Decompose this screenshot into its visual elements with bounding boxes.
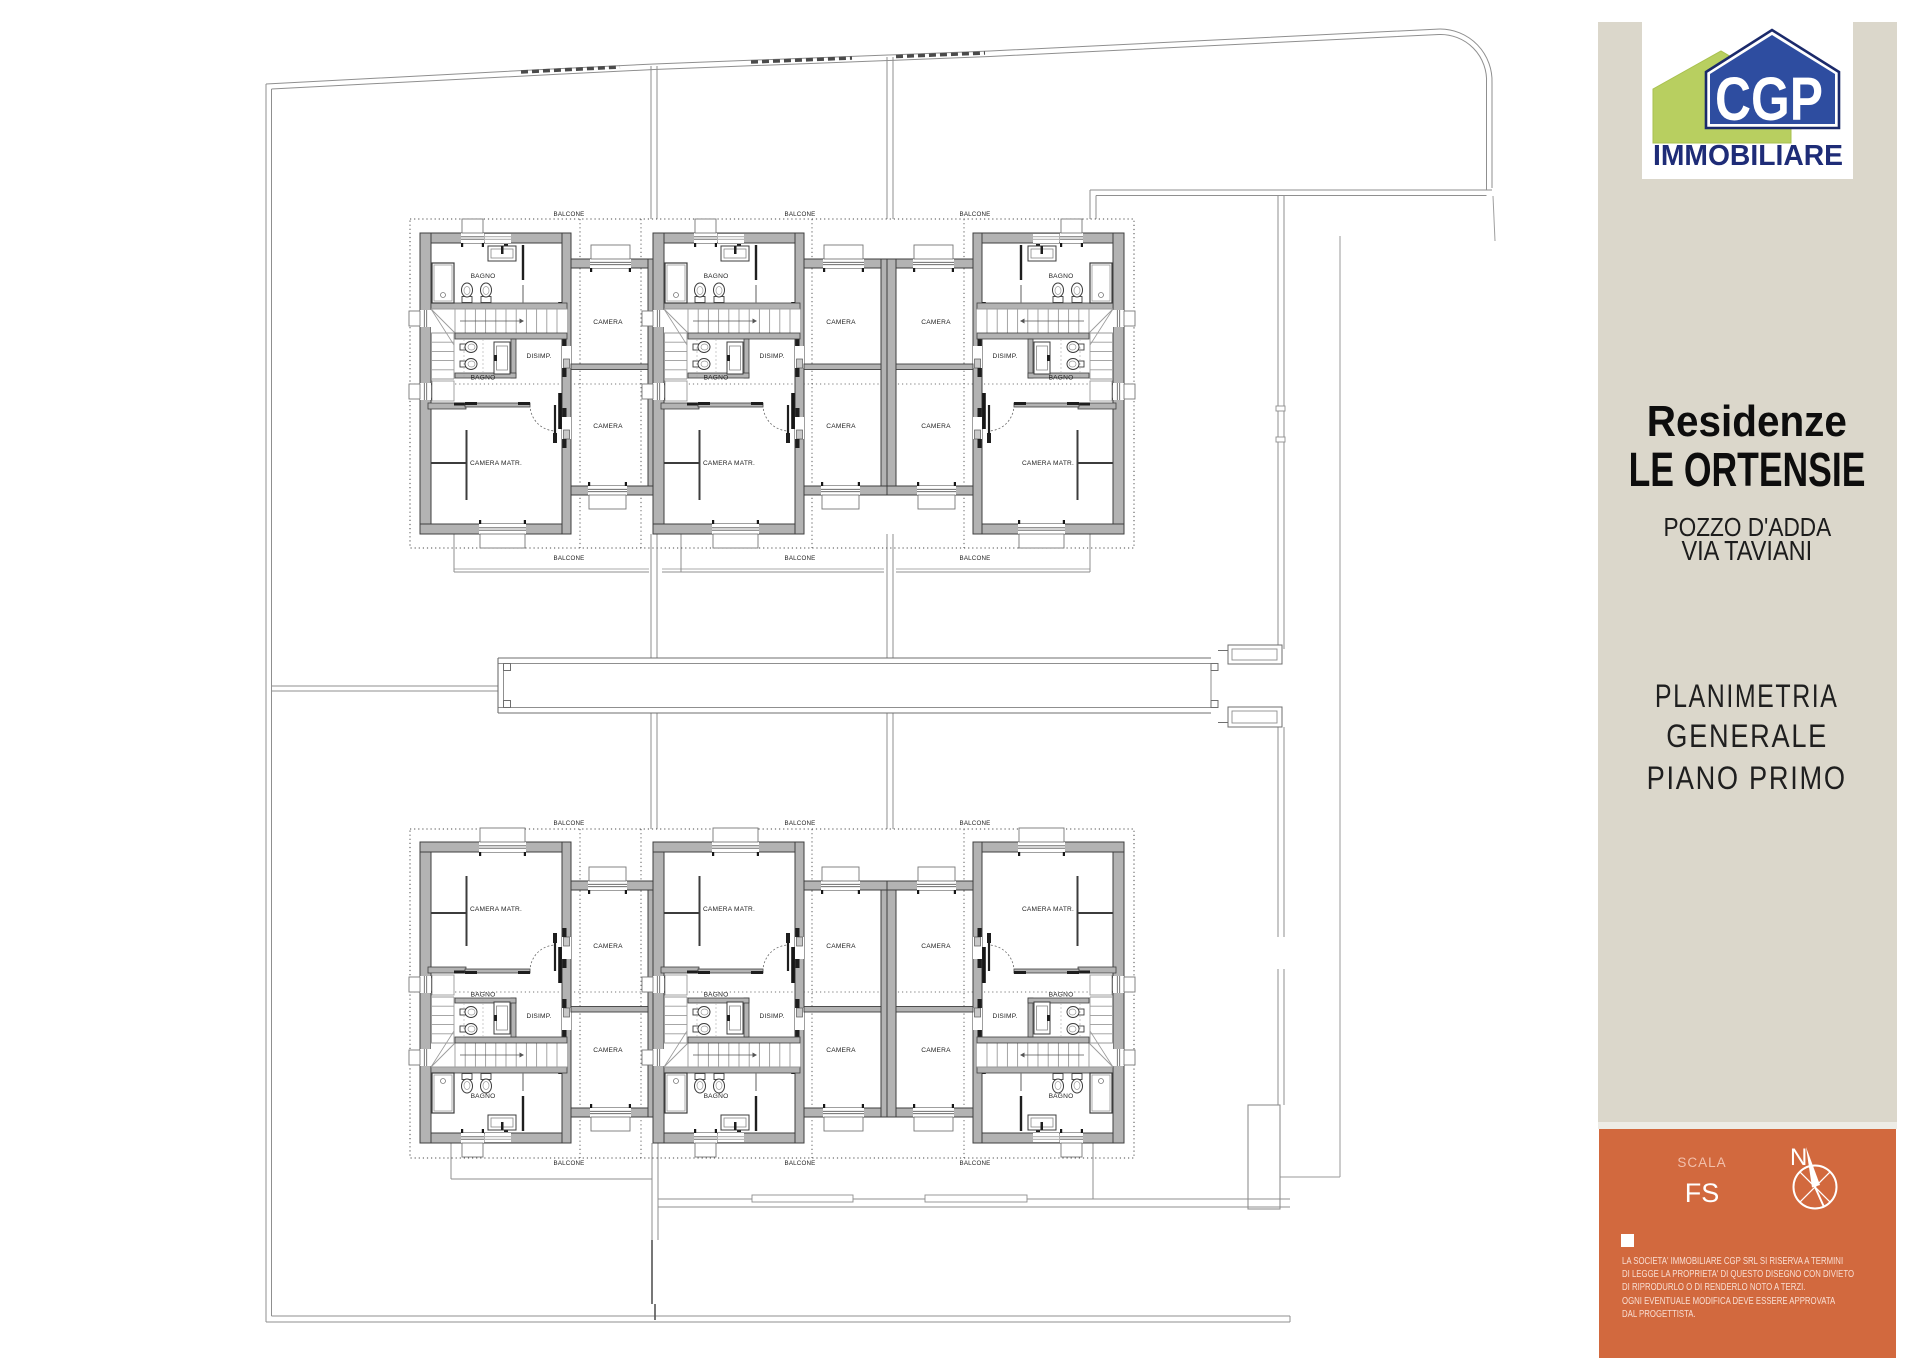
svg-text:BALCONE: BALCONE [960,820,991,827]
svg-text:CAMERA MATR.: CAMERA MATR. [1022,460,1074,467]
svg-text:DISIMP.: DISIMP. [526,1013,551,1020]
svg-text:CAMERA: CAMERA [921,423,951,430]
svg-text:BAGNO: BAGNO [471,375,496,382]
svg-text:BALCONE: BALCONE [960,1160,991,1167]
svg-text:BAGNO: BAGNO [1049,273,1074,280]
svg-text:DISIMP.: DISIMP. [992,1013,1017,1020]
svg-text:BALCONE: BALCONE [960,555,991,562]
svg-text:BAGNO: BAGNO [704,273,729,280]
svg-text:BALCONE: BALCONE [554,1160,585,1167]
svg-text:BAGNO: BAGNO [1049,1093,1074,1100]
svg-text:BAGNO: BAGNO [1049,375,1074,382]
svg-text:CAMERA: CAMERA [593,943,623,950]
svg-text:DISIMP.: DISIMP. [992,353,1017,360]
svg-text:BAGNO: BAGNO [471,273,496,280]
svg-text:CAMERA: CAMERA [921,1047,951,1054]
svg-text:CAMERA: CAMERA [826,319,856,326]
svg-text:CAMERA MATR.: CAMERA MATR. [1022,906,1074,913]
svg-text:CAMERA: CAMERA [921,943,951,950]
svg-text:IMMOBILIARE: IMMOBILIARE [1653,140,1843,172]
svg-text:BAGNO: BAGNO [471,992,496,999]
svg-text:CAMERA: CAMERA [826,1047,856,1054]
svg-text:BALCONE: BALCONE [554,211,585,218]
svg-text:CAMERA MATR.: CAMERA MATR. [470,460,522,467]
svg-text:DISIMP.: DISIMP. [759,353,784,360]
svg-text:BAGNO: BAGNO [471,1093,496,1100]
svg-text:BALCONE: BALCONE [554,555,585,562]
svg-text:BALCONE: BALCONE [785,820,816,827]
svg-text:BAGNO: BAGNO [704,375,729,382]
svg-text:CAMERA: CAMERA [593,1047,623,1054]
svg-text:BALCONE: BALCONE [785,555,816,562]
svg-text:BAGNO: BAGNO [1049,992,1074,999]
svg-text:CAMERA: CAMERA [826,423,856,430]
svg-text:CAMERA MATR.: CAMERA MATR. [703,906,755,913]
svg-text:BALCONE: BALCONE [960,211,991,218]
svg-text:CAMERA: CAMERA [593,319,623,326]
svg-text:CAMERA: CAMERA [593,423,623,430]
svg-text:CAMERA: CAMERA [826,943,856,950]
svg-text:DISIMP.: DISIMP. [526,353,551,360]
svg-text:CAMERA: CAMERA [921,319,951,326]
svg-text:BALCONE: BALCONE [785,211,816,218]
svg-text:BALCONE: BALCONE [554,820,585,827]
svg-text:BAGNO: BAGNO [704,992,729,999]
svg-text:DISIMP.: DISIMP. [759,1013,784,1020]
svg-text:CGP: CGP [1715,65,1823,133]
svg-text:BAGNO: BAGNO [704,1093,729,1100]
svg-text:CAMERA MATR.: CAMERA MATR. [470,906,522,913]
svg-text:BALCONE: BALCONE [785,1160,816,1167]
svg-text:CAMERA MATR.: CAMERA MATR. [703,460,755,467]
